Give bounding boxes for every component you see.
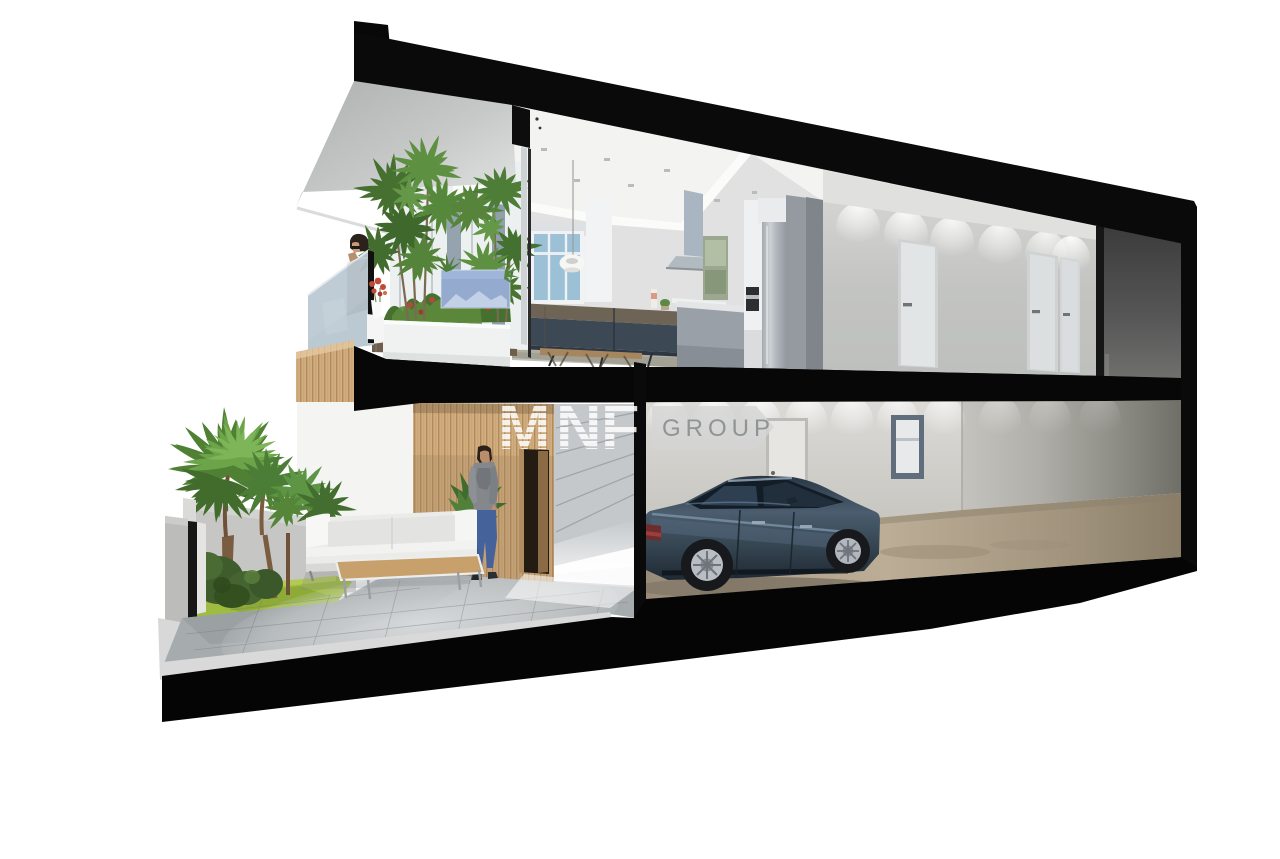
svg-text:N: N: [556, 393, 602, 463]
svg-text:GROUP: GROUP: [662, 415, 775, 442]
svg-text:M: M: [498, 393, 550, 463]
svg-text:F: F: [601, 393, 639, 463]
